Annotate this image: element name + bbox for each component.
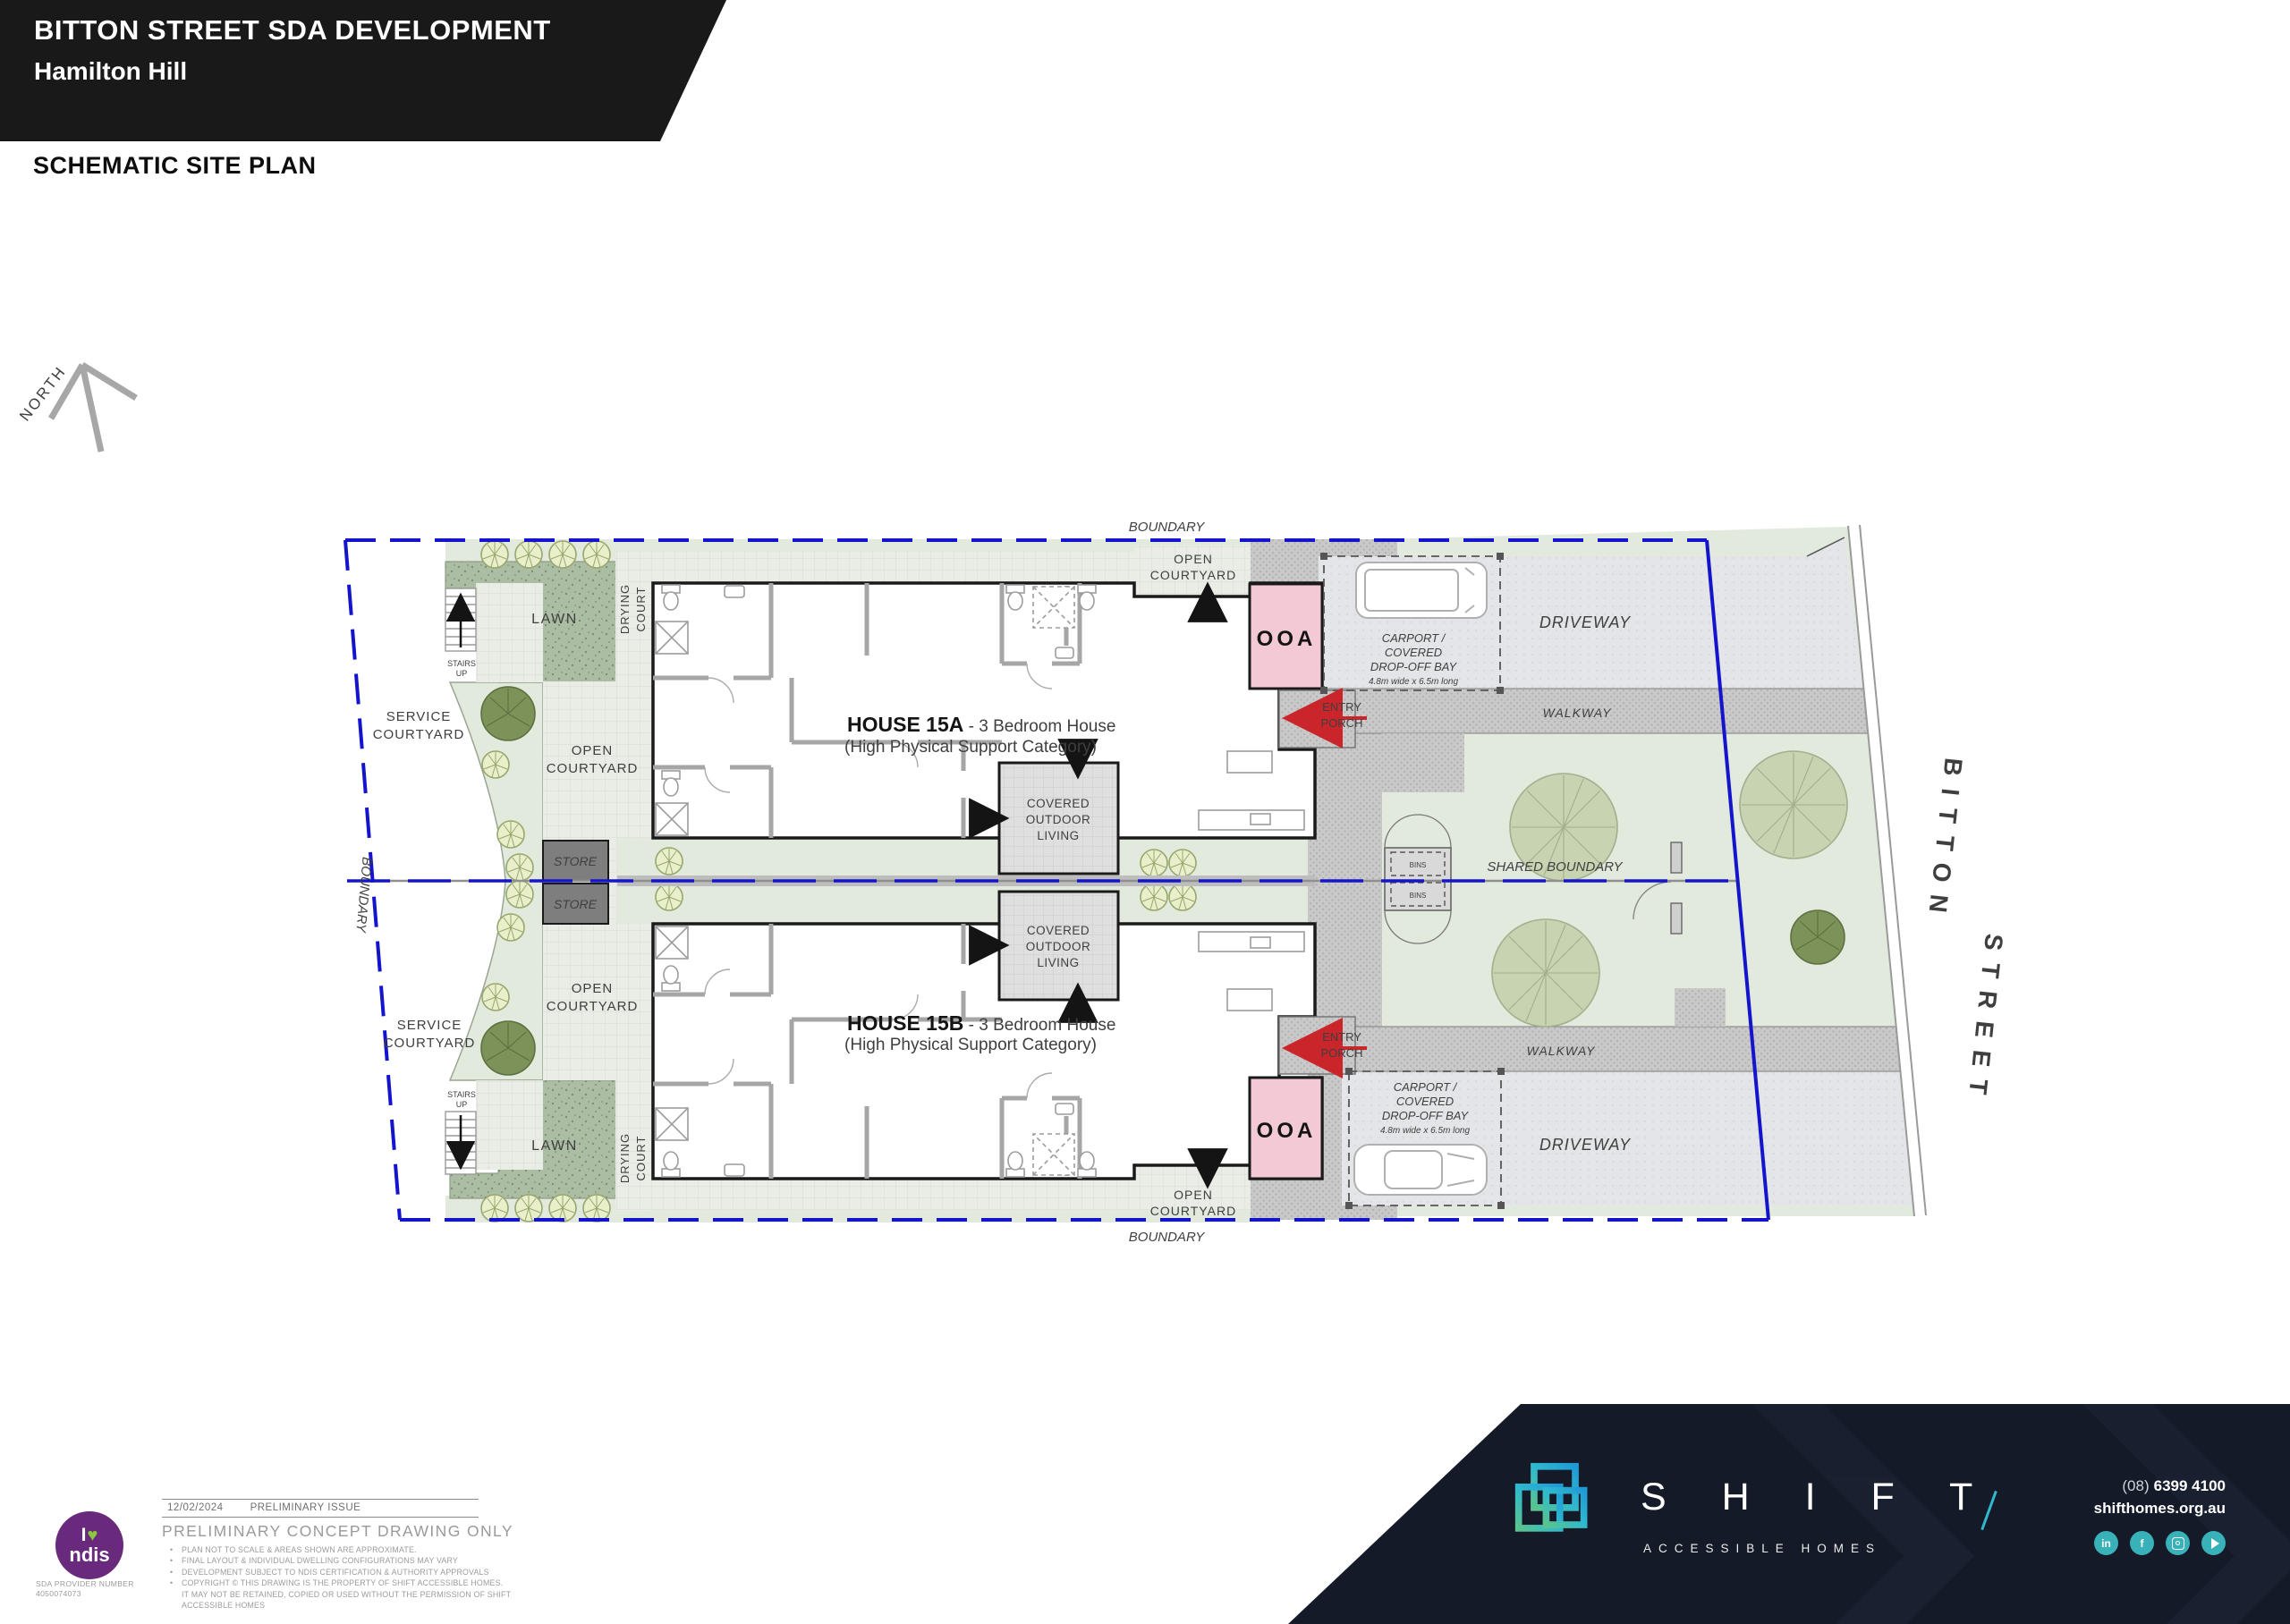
instagram-icon	[2166, 1531, 2190, 1555]
phone-number: (08)6399 4100	[2094, 1477, 2226, 1495]
label-col-a-1: COVERED	[1027, 797, 1090, 810]
label-lawn-bottom: LAWN	[531, 1138, 578, 1154]
label-col-b-1: COVERED	[1027, 924, 1090, 937]
label-service-courtyard-top-2: COURTYARD	[373, 727, 465, 742]
label-open-courtyard-left-top-2: COURTYARD	[547, 761, 639, 776]
label-boundary-left: BOUNDARY	[352, 857, 374, 935]
label-ooa-a: OOA	[1257, 627, 1317, 651]
bullet-icon: •	[170, 1544, 175, 1555]
label-street-2: STREET	[1963, 933, 2008, 1109]
car-icon	[1354, 1145, 1487, 1195]
label-col-a-2: OUTDOOR	[1026, 813, 1091, 826]
label-drying-court-bottom-1: DRYING	[618, 1133, 632, 1183]
label-open-courtyard-left-bottom-2: COURTYARD	[547, 999, 639, 1014]
label-driveway-a: DRIVEWAY	[1539, 613, 1632, 631]
label-street-1: BITTON	[1922, 757, 1967, 926]
title-banner: BITTON STREET SDA DEVELOPMENT Hamilton H…	[0, 0, 726, 141]
label-carport-b-1: CARPORT /	[1394, 1080, 1458, 1094]
disclaimer-notes: •PLAN NOT TO SCALE & AREAS SHOWN ARE APP…	[170, 1544, 555, 1611]
youtube-icon	[2201, 1531, 2226, 1555]
heart-icon: ♥	[87, 1527, 98, 1544]
label-store-bottom: STORE	[554, 897, 598, 911]
stairs-top	[445, 588, 476, 651]
bullet-icon: •	[170, 1555, 175, 1566]
label-service-courtyard-bottom-1: SERVICE	[397, 1018, 462, 1033]
label-drying-court-bottom-2: COURT	[634, 1136, 648, 1181]
label-open-courtyard-bottom-1: OPEN	[1174, 1188, 1213, 1202]
label-lawn-top: LAWN	[531, 612, 578, 627]
label-entry-porch-a-2: PORCH	[1321, 716, 1363, 730]
label-bins-2: BINS	[1410, 892, 1427, 900]
phone-area-code: (08)	[2122, 1477, 2149, 1494]
revision-date: 12/02/2024	[167, 1502, 224, 1513]
label-open-courtyard-top-1: OPEN	[1174, 552, 1213, 566]
label-store-top: STORE	[554, 854, 598, 868]
label-entry-porch-b-2: PORCH	[1321, 1046, 1363, 1060]
revision-status: PRELIMINARY ISSUE	[250, 1502, 361, 1513]
walkway-b	[1315, 1027, 1900, 1071]
label-open-courtyard-top-2: COURTYARD	[1150, 568, 1236, 582]
provider-number: 4050074073	[36, 1589, 134, 1599]
bullet-icon: •	[170, 1567, 175, 1577]
ndis-i: I	[81, 1526, 87, 1544]
note-2: FINAL LAYOUT & INDIVIDUAL DWELLING CONFI…	[182, 1555, 458, 1566]
facebook-icon: f	[2130, 1531, 2154, 1555]
label-shared-boundary: SHARED BOUNDARY	[1487, 859, 1623, 875]
note-3: DEVELOPMENT SUBJECT TO NDIS CERTIFICATIO…	[182, 1567, 489, 1577]
label-ooa-b: OOA	[1257, 1119, 1317, 1143]
label-stairs-top-1: STAIRS	[447, 659, 476, 668]
label-carport-b-3: DROP-OFF BAY	[1382, 1109, 1470, 1122]
label-entry-porch-b-1: ENTRY	[1322, 1030, 1361, 1044]
note-4-continued: IT MAY NOT BE RETAINED, COPIED OR USED W…	[182, 1589, 555, 1611]
house-a-category: (High Physical Support Category)	[844, 738, 1097, 757]
house-15a	[653, 583, 1322, 838]
stairs-bottom	[445, 1112, 476, 1174]
note-1: PLAN NOT TO SCALE & AREAS SHOWN ARE APPR…	[182, 1544, 417, 1555]
label-carport-a-1: CARPORT /	[1382, 631, 1446, 645]
label-stairs-bottom-2: UP	[456, 1100, 468, 1109]
disclaimer-title: PRELIMINARY CONCEPT DRAWING ONLY	[162, 1522, 513, 1541]
contact-block: (08)6399 4100 shifthomes.org.au in f	[2094, 1477, 2226, 1555]
project-title: BITTON STREET SDA DEVELOPMENT	[34, 14, 551, 47]
label-boundary-bottom: BOUNDARY	[1129, 1230, 1205, 1245]
ndis-logo: I♥ ndis	[55, 1511, 123, 1579]
project-subtitle: Hamilton Hill	[34, 57, 187, 86]
house-b-type: - 3 Bedroom House	[963, 1016, 1115, 1035]
north-arrow-icon: NORTH	[16, 363, 136, 452]
linkedin-icon: in	[2094, 1531, 2118, 1555]
house-b-category: (High Physical Support Category)	[844, 1036, 1097, 1054]
provider-label: SDA PROVIDER NUMBER	[36, 1579, 134, 1589]
north-label: NORTH	[16, 363, 70, 425]
label-carport-a-3: DROP-OFF BAY	[1370, 660, 1458, 673]
van-icon	[1356, 562, 1487, 618]
label-bins-1: BINS	[1410, 861, 1427, 869]
label-carport-a-size: 4.8m wide x 6.5m long	[1369, 677, 1458, 687]
label-col-a-3: LIVING	[1037, 829, 1079, 842]
revision-row: 12/02/2024 PRELIMINARY ISSUE	[162, 1499, 479, 1518]
label-entry-porch-a-1: ENTRY	[1322, 700, 1361, 714]
label-open-courtyard-left-top-1: OPEN	[572, 743, 614, 758]
social-icons: in f	[2094, 1531, 2226, 1555]
sheet: NORTH	[0, 0, 2290, 1624]
label-carport-b-2: COVERED	[1396, 1095, 1454, 1108]
note-4: COPYRIGHT © THIS DRAWING IS THE PROPERTY…	[182, 1577, 503, 1588]
ndis-word: ndis	[69, 1545, 109, 1565]
label-drying-court-top-1: DRYING	[618, 584, 632, 634]
label-service-courtyard-top-1: SERVICE	[386, 709, 452, 724]
house-b-name: HOUSE 15B	[847, 1011, 963, 1035]
brand-tagline: ACCESSIBLE HOMES	[1643, 1542, 1881, 1555]
house-a-name: HOUSE 15A	[847, 713, 963, 736]
label-walkway-a: WALKWAY	[1542, 706, 1612, 720]
label-col-b-3: LIVING	[1037, 956, 1079, 969]
label-driveway-b: DRIVEWAY	[1539, 1136, 1632, 1154]
entry-porch-b	[1279, 1017, 1355, 1074]
label-carport-b-size: 4.8m wide x 6.5m long	[1380, 1126, 1470, 1136]
label-drying-court-top-2: COURT	[634, 587, 648, 632]
house-a-type: - 3 Bedroom House	[963, 717, 1115, 736]
label-open-courtyard-left-bottom-1: OPEN	[572, 981, 614, 996]
brand-name: S H I F T	[1641, 1476, 1995, 1519]
label-boundary-top: BOUNDARY	[1129, 520, 1205, 535]
phone-main: 6399 4100	[2154, 1477, 2226, 1494]
label-carport-a-2: COVERED	[1385, 646, 1442, 659]
label-col-b-2: OUTDOOR	[1026, 940, 1091, 953]
label-service-courtyard-bottom-2: COURTYARD	[384, 1036, 476, 1051]
shift-logo	[1512, 1461, 1598, 1547]
bullet-icon: •	[170, 1577, 175, 1588]
drawing-title: SCHEMATIC SITE PLAN	[33, 152, 317, 180]
label-walkway-b: WALKWAY	[1526, 1044, 1596, 1058]
label-open-courtyard-bottom-2: COURTYARD	[1150, 1204, 1236, 1218]
label-stairs-top-2: UP	[456, 669, 468, 678]
label-stairs-bottom-1: STAIRS	[447, 1090, 476, 1099]
site-plan: NORTH	[0, 0, 2290, 1624]
website: shifthomes.org.au	[2094, 1500, 2226, 1518]
sda-provider: SDA PROVIDER NUMBER 4050074073	[36, 1579, 134, 1599]
